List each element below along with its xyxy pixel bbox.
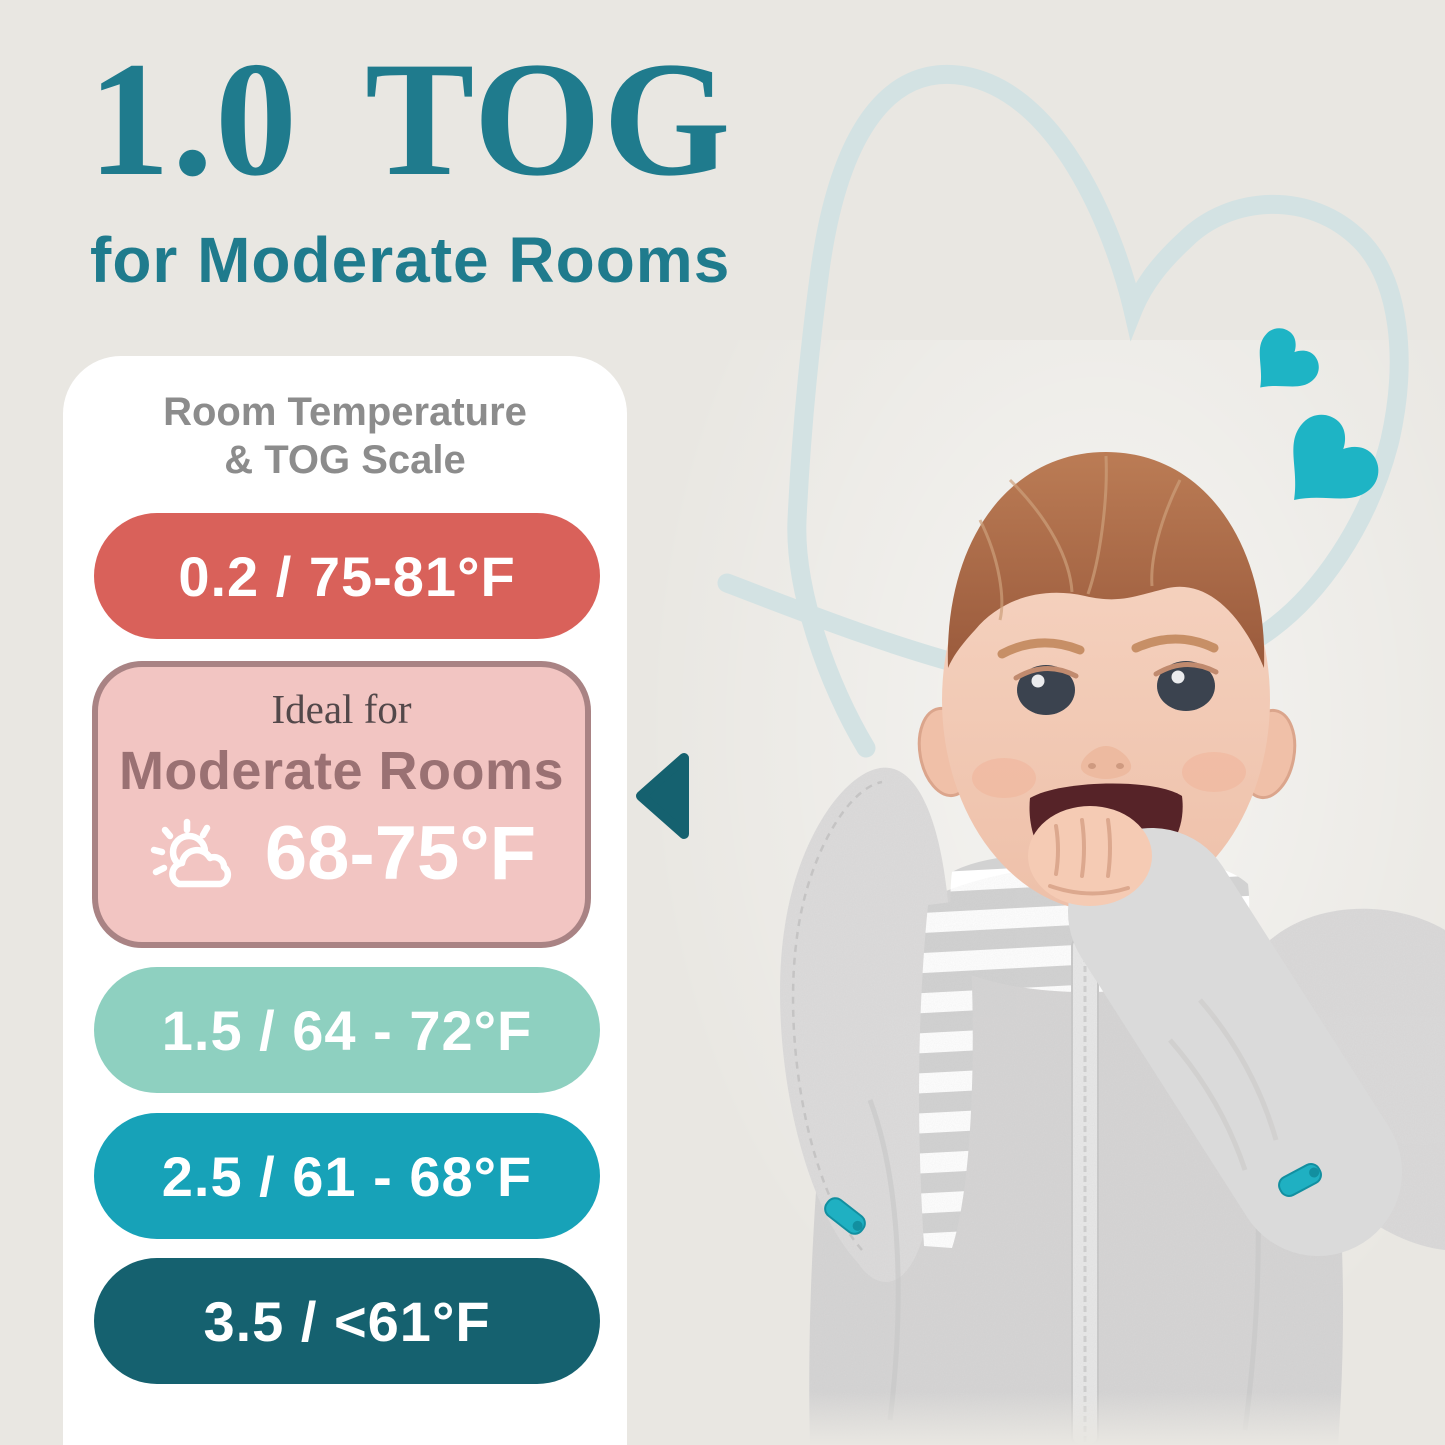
tog-row-3.5: 3.5 / <61°F: [94, 1258, 600, 1384]
pointer-triangle-icon: [632, 748, 692, 844]
panel-heading-line2: & TOG Scale: [63, 436, 627, 484]
cheek-blush: [972, 758, 1036, 798]
ideal-card-temp: 68-75°F: [265, 816, 536, 892]
nostril: [1088, 763, 1096, 769]
pointer-triangle-shape: [641, 758, 684, 834]
tog-row-0.2: 0.2 / 75-81°F: [94, 513, 600, 639]
panel-heading: Room Temperature & TOG Scale: [63, 388, 627, 484]
page-subtitle: for Moderate Rooms: [90, 228, 733, 292]
tog-row-2.5: 2.5 / 61 - 68°F: [94, 1113, 600, 1239]
cheek-blush: [1182, 752, 1246, 792]
ideal-card-temp-row: 68-75°F: [147, 814, 536, 894]
panel-heading-line1: Room Temperature: [63, 388, 627, 436]
tog-row-1.5: 1.5 / 64 - 72°F: [94, 967, 600, 1093]
infographic-canvas: 1.0 TOG for Moderate Rooms Room Temperat…: [0, 0, 1445, 1445]
ideal-room-card: Ideal for Moderate Rooms 68-75°F: [92, 661, 591, 948]
tog-scale-panel: Room Temperature & TOG Scale 0.2 / 75-81…: [63, 356, 627, 1445]
nostril: [1116, 763, 1124, 769]
hero-block: 1.0 TOG for Moderate Rooms: [88, 38, 733, 292]
photo-bottom-fade: [700, 1392, 1445, 1445]
page-title: 1.0 TOG: [88, 38, 733, 202]
baby-fist: [1028, 806, 1152, 906]
ideal-card-room: Moderate Rooms: [119, 744, 564, 798]
ideal-card-intro: Ideal for: [272, 689, 412, 730]
sun-behind-cloud-icon: [147, 814, 251, 894]
